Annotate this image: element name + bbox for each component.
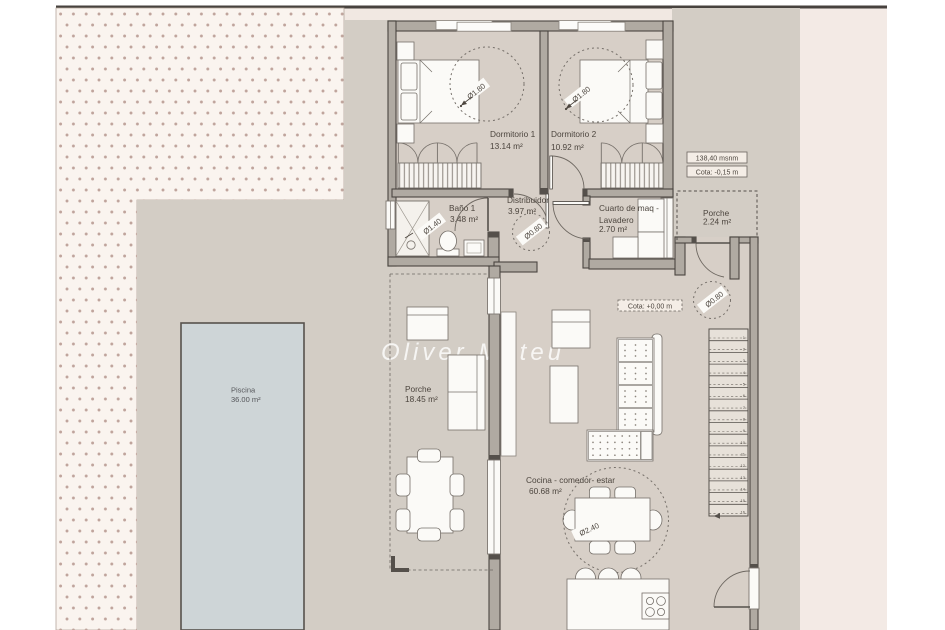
svg-text:13: 13: [741, 475, 746, 480]
svg-text:10: 10: [741, 440, 746, 445]
svg-text:Cota: +0,00 m: Cota: +0,00 m: [628, 304, 672, 311]
svg-text:2.24 m²: 2.24 m²: [703, 217, 731, 227]
svg-text:10.92 m²: 10.92 m²: [551, 142, 584, 152]
svg-text:36.00 m²: 36.00 m²: [231, 395, 261, 404]
svg-text:13.14 m²: 13.14 m²: [490, 141, 523, 151]
svg-text:138,40 msnm: 138,40 msnm: [696, 156, 739, 163]
svg-text:3.48 m²: 3.48 m²: [450, 214, 478, 224]
svg-text:Baño 1: Baño 1: [449, 203, 476, 213]
svg-text:15: 15: [741, 498, 746, 503]
svg-text:16: 16: [741, 510, 746, 515]
svg-text:3.97 m²: 3.97 m²: [508, 206, 536, 216]
svg-text:Dormitorio 1: Dormitorio 1: [490, 129, 536, 139]
svg-text:18.45 m²: 18.45 m²: [405, 394, 438, 404]
svg-text:Cuarto de maq -: Cuarto de maq -: [599, 203, 659, 213]
svg-text:60.68 m²: 60.68 m²: [529, 486, 562, 496]
svg-text:Distribuidor: Distribuidor: [507, 195, 549, 205]
svg-text:Cocina - comedor- estar: Cocina - comedor- estar: [526, 475, 615, 485]
svg-text:Dormitorio 2: Dormitorio 2: [551, 129, 597, 139]
svg-text:Piscina: Piscina: [231, 386, 256, 395]
svg-text:14: 14: [741, 487, 746, 492]
svg-text:Cota: -0,15 m: Cota: -0,15 m: [696, 170, 739, 177]
svg-text:12: 12: [741, 463, 746, 468]
svg-text:2.70 m²: 2.70 m²: [599, 224, 627, 234]
svg-text:Porche: Porche: [405, 384, 432, 394]
